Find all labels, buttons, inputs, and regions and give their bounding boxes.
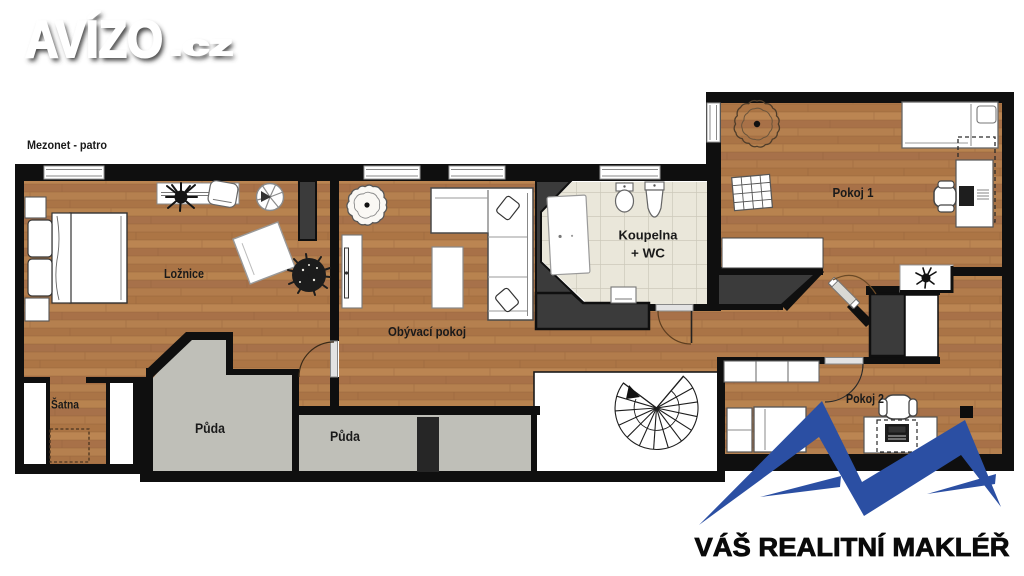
svg-text:Pokoj 1: Pokoj 1 [833,185,874,200]
svg-text:Ložnice: Ložnice [164,266,204,281]
svg-text:+ WC: + WC [631,246,666,261]
svg-text:Pokoj 2: Pokoj 2 [846,392,884,406]
svg-text:.cz: .cz [169,30,233,62]
svg-text:Koupelna: Koupelna [619,228,679,243]
svg-text:Šatna: Šatna [51,399,80,412]
svg-text:Mezonet - patro: Mezonet - patro [27,138,107,152]
svg-text:VÁŠ REALITNÍ MAKLÉŘ: VÁŠ REALITNÍ MAKLÉŘ [695,532,1010,562]
svg-text:Obývací pokoj: Obývací pokoj [388,324,466,339]
svg-text:Půda: Půda [330,429,360,444]
svg-text:AVÍZO: AVÍZO [25,11,163,69]
svg-text:Půda: Půda [195,421,225,436]
